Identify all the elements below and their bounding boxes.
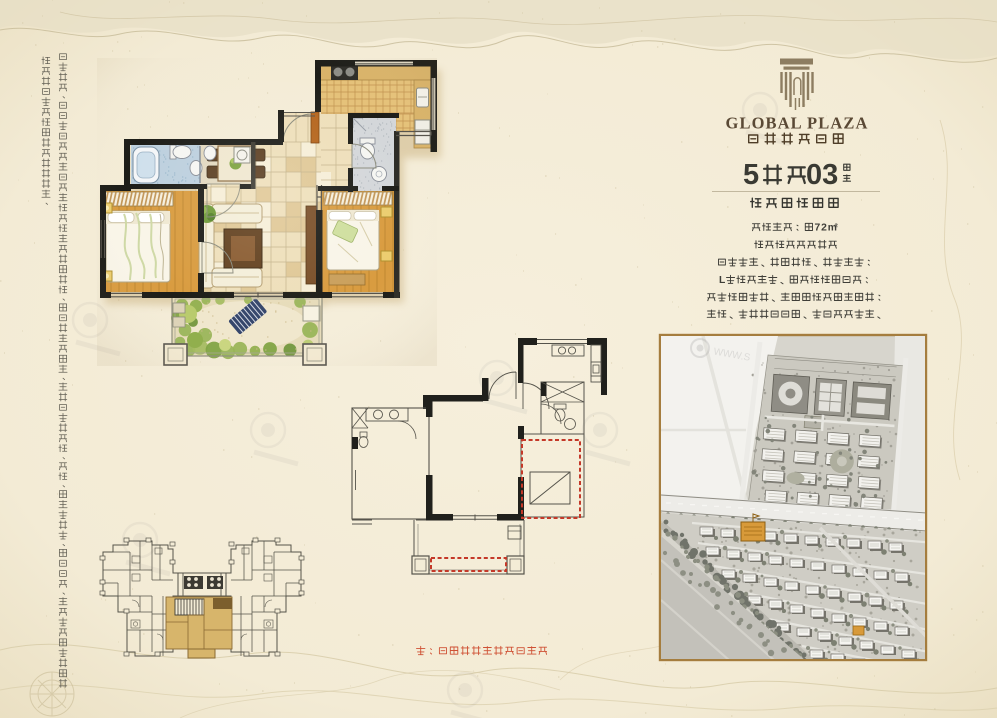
svg-text:03: 03 (806, 159, 838, 191)
svg-text:²: ² (834, 222, 838, 233)
svg-text:7: 7 (815, 222, 821, 233)
svg-text:5: 5 (743, 159, 759, 191)
svg-text:L: L (719, 275, 725, 286)
svg-text:2: 2 (821, 222, 827, 233)
svg-text:GLOBAL PLAZA: GLOBAL PLAZA (726, 114, 869, 133)
